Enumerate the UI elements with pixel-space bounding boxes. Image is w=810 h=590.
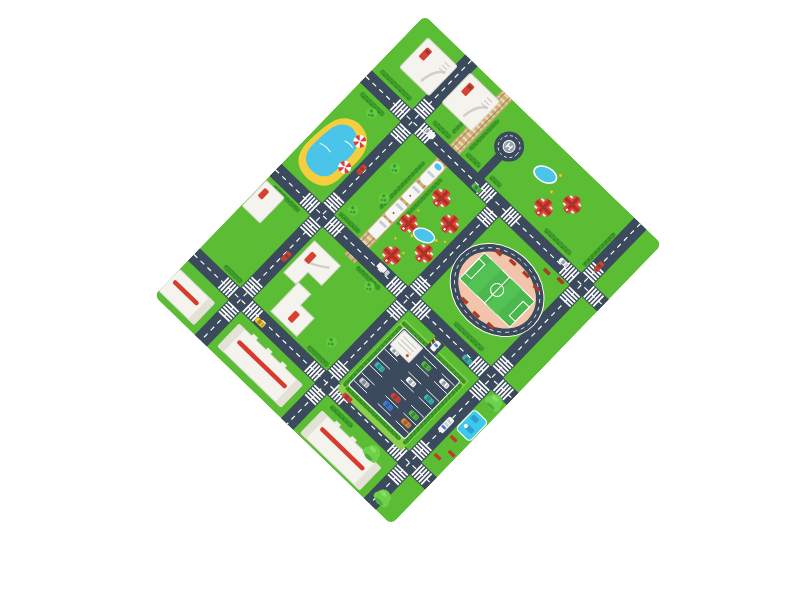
play-mat [154, 15, 662, 525]
product-photo-canvas [0, 0, 810, 590]
play-mat-artwork [154, 15, 662, 525]
